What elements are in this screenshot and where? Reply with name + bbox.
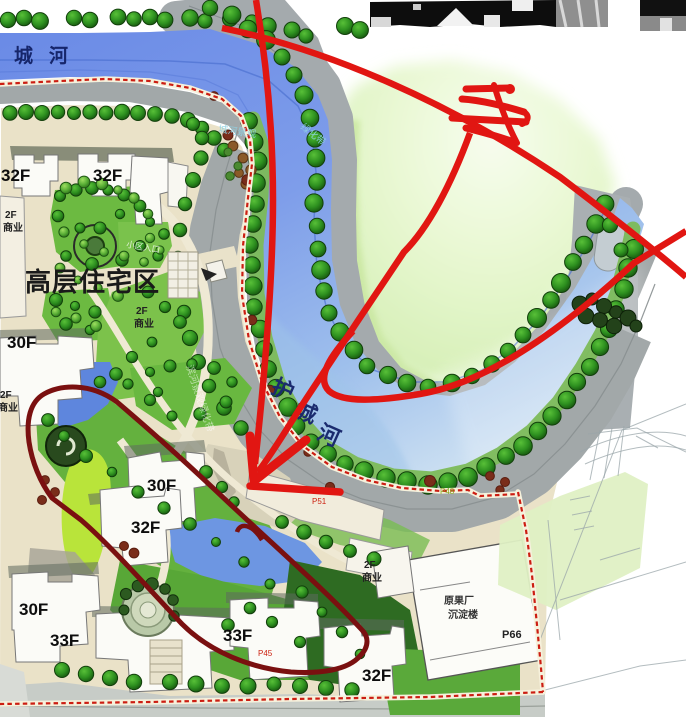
svg-text:30F: 30F (19, 600, 48, 619)
svg-text:P48: P48 (440, 487, 455, 496)
svg-text:30F: 30F (147, 476, 176, 495)
svg-text:P51: P51 (312, 497, 327, 506)
svg-text:城: 城 (14, 44, 33, 67)
svg-text:商业: 商业 (3, 221, 23, 234)
svg-text:33F: 33F (223, 626, 252, 645)
svg-text:32F: 32F (93, 166, 122, 185)
svg-text:沉淀楼: 沉淀楼 (448, 608, 478, 621)
svg-text:2F: 2F (364, 560, 376, 571)
svg-text:2F: 2F (0, 390, 12, 401)
svg-text:33F: 33F (50, 631, 79, 650)
svg-text:商业: 商业 (134, 317, 154, 330)
svg-text:商业: 商业 (362, 571, 382, 584)
svg-text:30F: 30F (7, 333, 36, 352)
svg-text:原果厂: 原果厂 (444, 595, 474, 607)
svg-text:2F: 2F (136, 306, 148, 317)
svg-text:高层住宅区: 高层住宅区 (25, 267, 160, 297)
svg-text:P45: P45 (258, 649, 273, 658)
svg-text:2F: 2F (5, 210, 17, 221)
svg-text:P66: P66 (502, 629, 522, 641)
svg-text:32F: 32F (362, 666, 391, 685)
svg-text:32F: 32F (1, 166, 30, 185)
svg-text:商业: 商业 (0, 401, 18, 414)
svg-text:32F: 32F (131, 518, 160, 537)
svg-text:河: 河 (49, 45, 68, 67)
